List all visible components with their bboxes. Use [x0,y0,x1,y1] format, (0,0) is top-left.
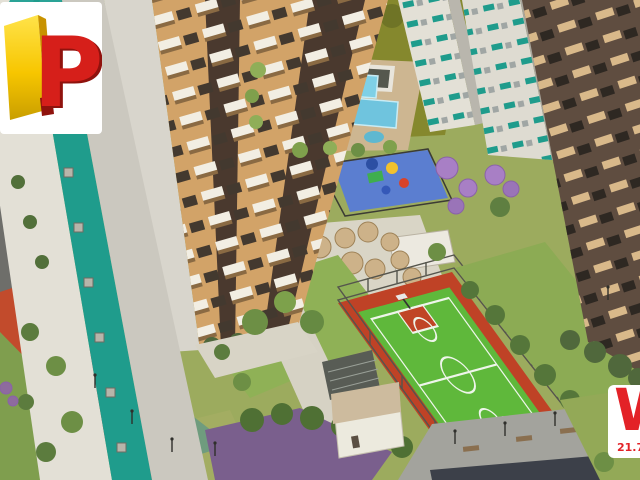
render-viewport: P P W 21.7 [0,0,640,480]
watermark-caption: 21.7 [617,441,640,454]
watermark-badge: W 21.7 [608,385,640,458]
watermark-letter: W [614,381,640,439]
jacuzzi [364,131,384,143]
developer-logo: P P [0,2,102,134]
logo-letter: P [33,17,102,129]
